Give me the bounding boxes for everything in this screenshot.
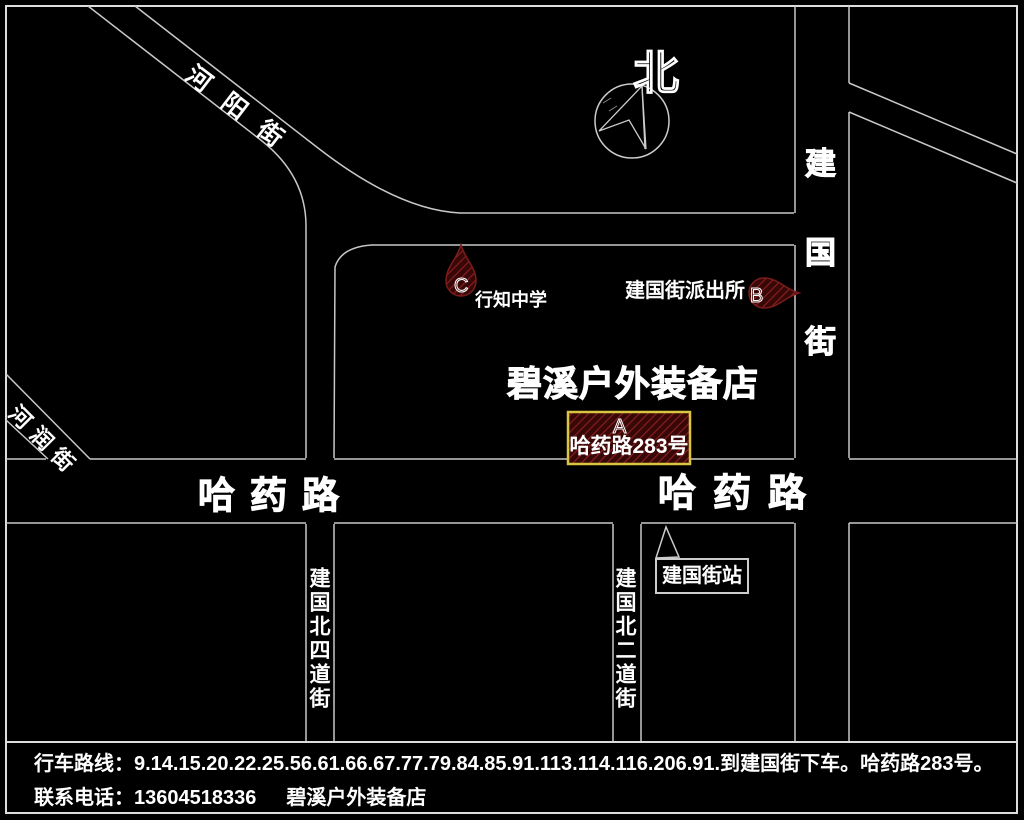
street-label-jianguo: 建国街 [802, 147, 833, 414]
bus-stop-label: 建国街站 [662, 566, 742, 586]
footer-contact-line: 联系电话：13604518336碧溪户外装备店 [34, 788, 426, 808]
street-label-hayao-left: 哈药路 [198, 477, 354, 514]
bus-stop-callout: 建国街站 [655, 558, 749, 594]
marker-a-address: 哈药路283号 [568, 436, 690, 457]
marker-c-letter: C [454, 275, 468, 297]
compass-ticks [603, 98, 617, 111]
map-graphics: 北 C B A [0, 0, 1024, 820]
station-callout-pointer [656, 527, 679, 558]
road-topright-diagonal [849, 83, 1017, 183]
footer-store-name: 碧溪户外装备店 [286, 787, 426, 809]
store-title: 碧溪户外装备店 [507, 367, 759, 402]
street-label-jianguo-bei-si: 建国北四道街 [308, 567, 329, 711]
street-label-hayao-right: 哈药路 [658, 475, 823, 513]
map-border [6, 6, 1017, 813]
phone-number: 13604518336 [134, 787, 256, 809]
footer-route-line: 行车路线：9.14.15.20.22.25.56.61.66.67.77.79.… [34, 754, 993, 774]
phone-label: 联系电话： [34, 787, 134, 809]
store-location-map: 北 C B A 河阳街 河润街 哈药路 哈药路 建国街 建国北四道街 建国北二道… [0, 0, 1024, 820]
marker-b-letter: B [750, 285, 763, 307]
poi-label-xingzhi-school: 行知中学 [475, 291, 547, 309]
compass-north-label: 北 [633, 47, 679, 99]
street-label-jianguo-bei-er: 建国北二道街 [614, 567, 635, 711]
road-east-west-bottom-edge [334, 245, 794, 458]
poi-label-police-station: 建国街派出所 [625, 281, 745, 301]
